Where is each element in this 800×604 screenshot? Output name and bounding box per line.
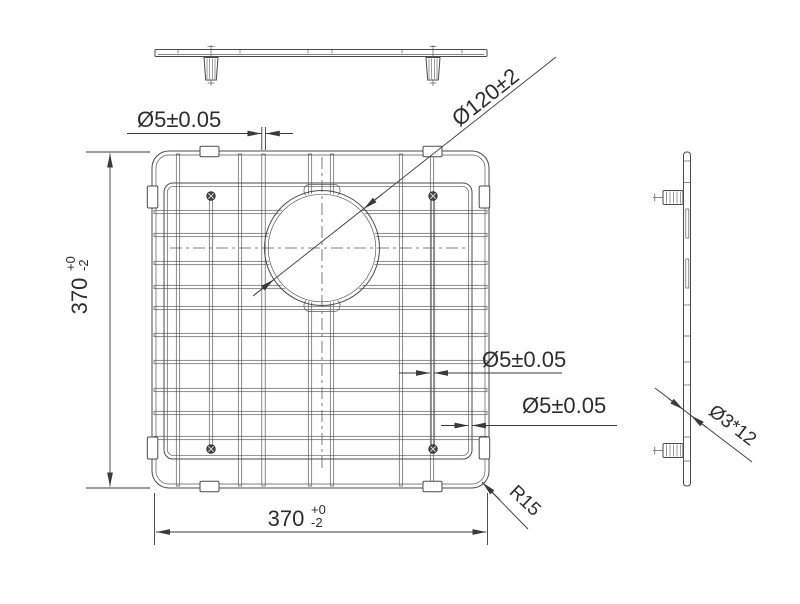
- side-view: [653, 152, 691, 486]
- dim-wire-diameter-top: Ø5±0.05: [127, 107, 293, 150]
- dim-wire-diameter-right-2: Ø5±0.05: [441, 393, 617, 426]
- dim-width: 370 +0 -2: [155, 493, 488, 545]
- dim-label-height-value: 370: [67, 278, 92, 315]
- mounting-foot-front-left: [204, 45, 218, 86]
- side-slot-1: [686, 209, 689, 238]
- top-view: [155, 45, 487, 86]
- dim-height: 370 +0 -2: [63, 152, 150, 488]
- dim-label-height-tol-lower: -2: [76, 259, 91, 271]
- side-slot-2: [686, 259, 689, 288]
- plan-view: [147, 146, 489, 491]
- dim-label-wire-top: Ø5±0.05: [137, 107, 221, 132]
- side-bar-profile: [684, 152, 691, 486]
- dim-label-corner-radius: R15: [505, 481, 545, 520]
- mounting-foot-front-right: [426, 45, 440, 86]
- dim-label-width-tol-lower: -2: [311, 515, 323, 530]
- dim-hole-diameter: Ø120±2: [253, 57, 556, 296]
- drawing-sheet: Ø5±0.05 Ø120±2 370 +0 -2 Ø5±0.05: [0, 0, 800, 604]
- mounting-foot-side-upper: [653, 191, 683, 205]
- dim-label-foot-size: Ø3*12: [705, 401, 761, 450]
- bar-weld-ticks: [178, 50, 462, 53]
- dim-label-width-value: 370: [268, 506, 305, 531]
- dim-label-wire-right-2: Ø5±0.05: [522, 393, 606, 418]
- side-weld-ticks: [684, 161, 691, 461]
- mounting-foot-side-lower: [653, 444, 683, 458]
- dim-label-wire-right-1: Ø5±0.05: [482, 347, 566, 372]
- dim-corner-radius: R15: [482, 481, 545, 529]
- technical-drawing-sink-grid: Ø5±0.05 Ø120±2 370 +0 -2 Ø5±0.05: [0, 0, 800, 604]
- grid-bar-profile: [155, 50, 487, 57]
- dim-label-hole: Ø120±2: [447, 63, 524, 131]
